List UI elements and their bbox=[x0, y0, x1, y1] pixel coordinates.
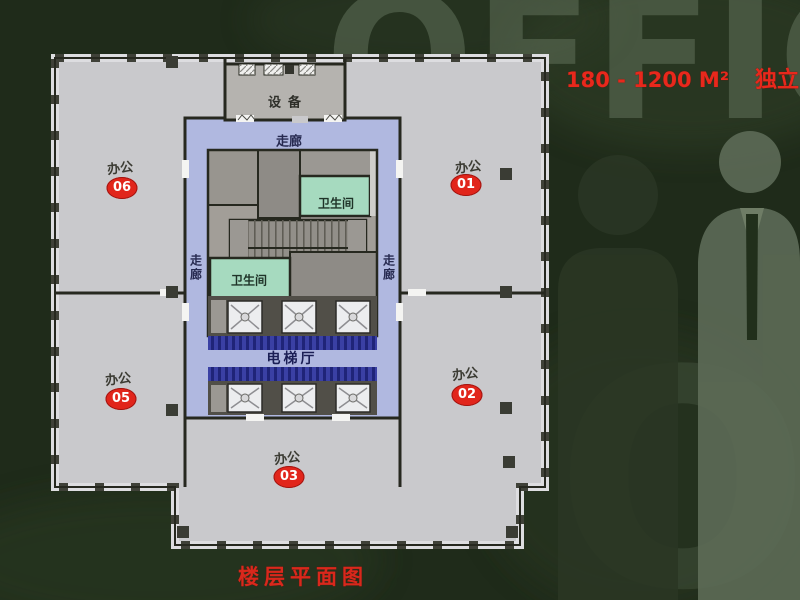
elevator-bank-bottom bbox=[208, 381, 377, 415]
elevator-icon bbox=[228, 301, 262, 333]
equipment-room-label: 设备 bbox=[268, 92, 308, 111]
office-05-label: 办公 bbox=[104, 367, 132, 389]
office-05-badge: 05 bbox=[106, 388, 137, 410]
elevator-icon bbox=[282, 301, 316, 333]
office-03-badge: 03 bbox=[274, 466, 305, 488]
office-02-badge: 02 bbox=[452, 384, 483, 406]
office-03-label: 办公 bbox=[273, 446, 301, 468]
elevator-hall-label: 电梯厅 bbox=[267, 348, 318, 368]
corridor-right-label: 走廊 bbox=[381, 254, 398, 282]
area-range-text: 180 - 1200 M² bbox=[566, 68, 729, 92]
equipment-door bbox=[292, 116, 308, 123]
area-tagline-text: 独立 bbox=[755, 68, 799, 93]
elevator-bank-top bbox=[208, 296, 377, 336]
toilet-lower-label: 卫生间 bbox=[231, 272, 267, 289]
corridor-left-label: 走廊 bbox=[188, 254, 205, 282]
area-title: 180 - 1200 M²独立 bbox=[566, 62, 799, 94]
plan-caption: 楼层平面图 bbox=[238, 561, 368, 591]
toilet-upper-label: 卫生间 bbox=[318, 195, 354, 212]
office-01-badge: 01 bbox=[451, 174, 482, 196]
poster: OFFICE OFFICE bbox=[0, 0, 800, 600]
office-02-label: 办公 bbox=[451, 362, 479, 384]
elevator-icon bbox=[228, 384, 262, 412]
corridor-top-label: 走廊 bbox=[276, 131, 302, 150]
elevator-icon bbox=[336, 384, 370, 412]
office-06-label: 办公 bbox=[106, 156, 134, 178]
elevator-icon bbox=[282, 384, 316, 412]
office-06-badge: 06 bbox=[107, 177, 138, 199]
elevator-icon bbox=[336, 301, 370, 333]
